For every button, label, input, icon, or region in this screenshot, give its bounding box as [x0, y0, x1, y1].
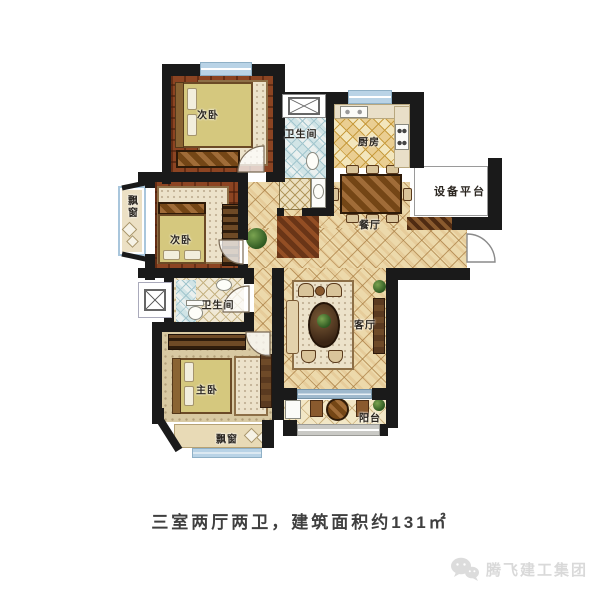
room-label-bath-mid: 卫生间 [202, 297, 235, 312]
balcony-sliding-door [297, 389, 372, 399]
pillow [187, 88, 197, 110]
bedroom-top-headboard [175, 82, 184, 148]
room-label-kitchen: 厨房 [358, 134, 380, 149]
wall [152, 322, 162, 414]
wall [372, 388, 386, 400]
armchair [328, 350, 343, 363]
room-label-bay-bottom: 飘窗 [216, 431, 238, 446]
pillow [187, 114, 197, 136]
dining-chair [346, 214, 359, 223]
floor-plan: 次卧 卫生间 厨房 设备平台 次卧 餐厅 卫生间 客厅 主卧 阳台 飘窗 飘窗 [0, 0, 600, 490]
corridor-floor [254, 268, 272, 332]
plant [317, 314, 331, 328]
sink [313, 184, 324, 199]
room-label-balcony: 阳台 [359, 410, 381, 425]
wall [266, 172, 285, 182]
dining-chair [386, 214, 399, 223]
room-label-bay-left: 飘窗 [124, 195, 139, 219]
washing-machine [285, 400, 301, 419]
stove [395, 124, 409, 150]
dining-chair [346, 165, 359, 174]
wall [386, 268, 470, 280]
watermark-text: 腾飞建工集团 [486, 559, 588, 580]
room-label-master: 主卧 [196, 382, 218, 397]
bedroom-mid-wardrobe [222, 204, 239, 266]
room-label-dining: 餐厅 [359, 217, 381, 232]
room-label-bath-top: 卫生间 [285, 126, 318, 141]
master-wardrobe [168, 334, 246, 350]
dining-chair [403, 188, 412, 201]
wall [152, 322, 246, 332]
master-headboard [172, 358, 181, 414]
room-label-living: 客厅 [354, 317, 376, 332]
passage-wood-floor [277, 216, 319, 258]
entry-door [467, 234, 495, 262]
bay-window [192, 448, 262, 458]
side-table [315, 286, 325, 296]
armchair [301, 350, 316, 363]
armchair [326, 283, 342, 297]
wall [302, 208, 330, 216]
sink [216, 279, 232, 291]
watermark: 腾飞建工集团 [450, 556, 588, 582]
wall [152, 408, 164, 424]
wall [238, 174, 248, 240]
wall [284, 388, 297, 400]
wall [283, 420, 297, 436]
pillow [184, 362, 194, 382]
hatched-wall [407, 217, 452, 230]
plant [246, 228, 267, 249]
balcony-table [326, 398, 349, 421]
balcony-chair [310, 400, 323, 417]
wall [244, 268, 254, 284]
wall [386, 268, 398, 428]
wall [273, 64, 285, 182]
shaft-x-symbol [288, 97, 320, 115]
plant [373, 280, 386, 293]
wall [277, 208, 284, 216]
caption: 三室两厅两卫，建筑面积约131㎡ [0, 508, 600, 533]
room-label-bedroom-top: 次卧 [197, 107, 219, 122]
pillow [184, 386, 194, 406]
dining-chair [366, 165, 379, 174]
armchair [298, 283, 314, 297]
wall [262, 420, 274, 448]
wechat-bubbles-icon [450, 556, 480, 582]
wall [452, 217, 502, 230]
wall [138, 268, 254, 278]
stairwell-x-symbol [144, 289, 166, 311]
window [348, 90, 392, 104]
floor-plan-page: 次卧 卫生间 厨房 设备平台 次卧 餐厅 卫生间 客厅 主卧 阳台 飘窗 飘窗 … [0, 0, 600, 600]
master-dresser [260, 354, 272, 408]
pillow [163, 250, 180, 260]
balcony-railing-window [297, 424, 380, 436]
living-sofa [286, 300, 299, 354]
room-label-bedroom-mid: 次卧 [170, 232, 192, 247]
toilet [306, 152, 319, 170]
pillow [184, 250, 201, 260]
kitchen-sink [340, 106, 368, 118]
bedroom-top-wardrobe [176, 150, 240, 168]
room-label-equipment: 设备平台 [434, 183, 486, 199]
dining-table [340, 174, 402, 214]
bath-top-shower-screen [279, 178, 311, 210]
wall [162, 64, 171, 184]
window [200, 62, 252, 76]
wall [326, 104, 334, 216]
wall [171, 172, 248, 182]
wall [145, 174, 155, 188]
wall [272, 268, 284, 420]
